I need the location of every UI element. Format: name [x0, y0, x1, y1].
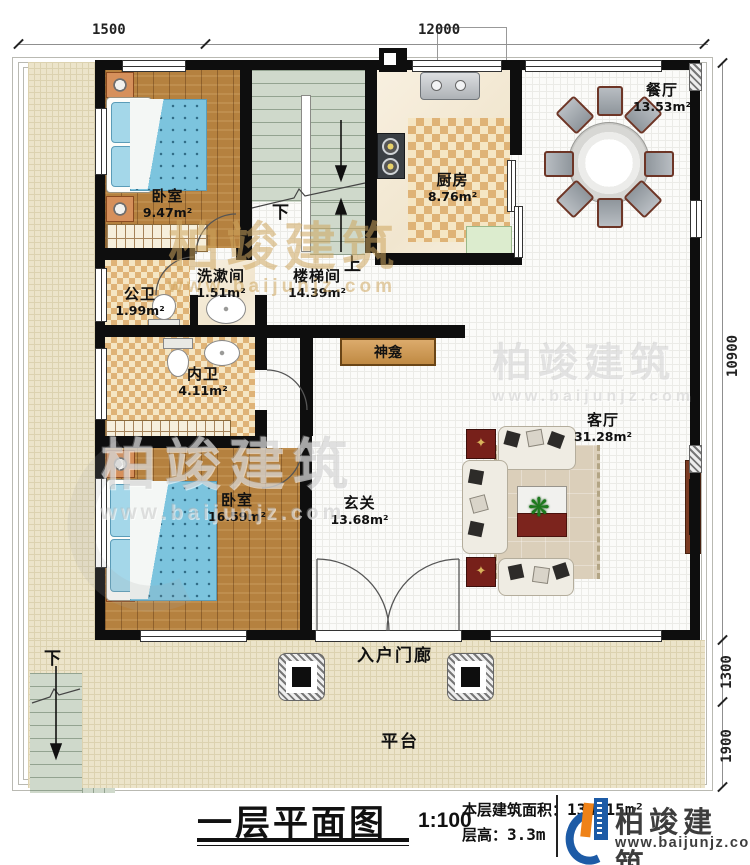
stove	[377, 133, 405, 179]
dining-chair	[597, 86, 623, 116]
window	[95, 478, 107, 568]
room-area: 14.39m²	[262, 286, 372, 301]
room-area: 16.59m²	[192, 510, 282, 525]
inner-bath-sink	[204, 340, 240, 366]
wall	[95, 418, 105, 478]
dim-top-left: 1500	[92, 22, 126, 38]
bed-sheet	[130, 99, 172, 189]
brand-logo-icon	[565, 797, 613, 859]
room-area: 9.47m²	[120, 206, 215, 221]
shrine-label: 神龛	[374, 344, 402, 360]
column-core	[461, 667, 480, 687]
room-label-washroom: 洗漱间 1.51m²	[180, 268, 262, 300]
title-separator	[556, 795, 558, 857]
room-name: 入户门廊	[330, 646, 460, 666]
outdoor-stair-down-label: 下	[44, 644, 61, 669]
room-label-public-bath: 公卫 1.99m²	[100, 286, 180, 318]
wall	[95, 60, 105, 108]
window	[122, 60, 186, 72]
window	[95, 108, 107, 175]
logo-building-blue	[594, 798, 608, 840]
stair-down-label: 下	[272, 198, 289, 223]
nightstand	[106, 72, 134, 98]
dining-chair	[644, 151, 674, 177]
nightstand	[106, 450, 135, 478]
stair-up-label: 上	[344, 250, 361, 275]
room-name: 公卫	[100, 286, 180, 304]
porch-column	[278, 653, 325, 701]
wall	[255, 337, 267, 370]
stairwell-floor-lower	[310, 202, 365, 255]
window	[525, 60, 662, 72]
wall	[300, 325, 313, 436]
potted-plant: ❋	[528, 494, 550, 520]
bed-sheet	[130, 481, 176, 599]
stair-divider	[301, 95, 311, 252]
flue-box-inner	[384, 53, 396, 65]
burner	[382, 158, 399, 175]
room-area: 1.51m²	[180, 286, 262, 301]
wall	[95, 566, 105, 640]
window	[140, 630, 247, 642]
room-label-bedroom2: 卧室 16.59m²	[192, 492, 282, 524]
room-area: 13.68m²	[312, 513, 407, 528]
room-label-platform: 平台	[355, 732, 445, 752]
wall	[690, 236, 700, 640]
room-label-foyer: 玄关 13.68m²	[312, 495, 407, 527]
burner	[382, 138, 399, 155]
sofa-cushion	[468, 521, 485, 538]
side-table: ✦	[466, 557, 496, 587]
dim-right-porch: 1300	[719, 655, 735, 689]
room-area: 1.99m²	[100, 304, 180, 319]
wall	[460, 630, 490, 640]
wall	[240, 60, 252, 250]
room-name: 内卫	[163, 366, 243, 384]
room-area: 13.53m²	[622, 100, 702, 115]
room-label-living: 客厅 31.28m²	[558, 412, 648, 444]
room-name: 餐厅	[622, 82, 702, 100]
brand-url: www.baijunjz.com	[615, 835, 750, 851]
floor-height-line: 层高：3.3m	[462, 824, 546, 845]
sofa-cushion	[532, 566, 550, 584]
room-name: 平台	[355, 732, 445, 752]
floor-area-label: 本层建筑面积：	[462, 802, 567, 819]
title-underline	[197, 838, 409, 842]
dining-chair	[544, 151, 574, 177]
sofa-cushion	[468, 469, 484, 485]
wall	[300, 448, 312, 630]
entry-threshold	[315, 630, 462, 642]
wall-hatch	[689, 445, 702, 473]
wall	[245, 630, 315, 640]
room-label-kitchen: 厨房 8.76m²	[405, 172, 500, 204]
window	[690, 200, 702, 238]
wall	[95, 630, 140, 640]
room-name: 卧室	[120, 188, 215, 206]
dim-line-top	[18, 44, 708, 45]
logo-windows	[597, 802, 602, 836]
kitchen-cabinet	[466, 226, 512, 255]
sofa-cushion	[526, 429, 545, 448]
kitchen-sliding-door	[514, 206, 523, 258]
floor-plan: ✦ ✦ ❋ 神龛	[0, 0, 750, 865]
wall	[95, 436, 260, 448]
wall	[95, 248, 195, 260]
faucet	[431, 80, 442, 91]
room-name: 洗漱间	[180, 268, 262, 286]
dim-top-main: 12000	[418, 22, 460, 38]
faucet	[455, 80, 466, 91]
wall	[265, 325, 465, 338]
room-label-bedroom1: 卧室 9.47m²	[120, 188, 215, 220]
wall	[184, 60, 412, 70]
room-area: 31.28m²	[558, 430, 648, 445]
dim-right-main: 10900	[725, 335, 741, 377]
room-label-dining: 餐厅 13.53m²	[622, 82, 702, 114]
title-underline-thin	[197, 845, 409, 846]
shrine-console: 神龛	[340, 338, 436, 366]
wall	[300, 436, 312, 448]
brand-block: 柏竣建筑 www.baijunjz.com	[565, 795, 750, 861]
room-label-inner-bath: 内卫 4.11m²	[163, 366, 243, 398]
sofa-cushion	[508, 564, 525, 581]
window	[95, 348, 107, 420]
kitchen-sliding-door	[507, 160, 516, 212]
room-area: 4.11m²	[163, 384, 243, 399]
floor-height-value: 3.3m	[507, 825, 546, 844]
wall	[365, 60, 377, 253]
dim-right-platform: 1900	[719, 729, 735, 763]
dining-chair	[597, 198, 623, 228]
floor-height-label: 层高：	[462, 827, 507, 844]
wall	[236, 248, 252, 260]
column-core	[292, 667, 311, 687]
window	[412, 60, 502, 72]
wall	[375, 253, 522, 265]
room-area: 8.76m²	[405, 190, 500, 205]
side-table: ✦	[466, 429, 496, 459]
title-block: 一层平面图 1:100 本层建筑面积：134.15m² 层高：3.3m 柏竣建筑…	[0, 793, 750, 865]
room-name: 客厅	[558, 412, 648, 430]
kitchen-sink	[420, 72, 480, 100]
room-label-porch: 入户门廊	[330, 646, 460, 666]
brand-name: 柏竣建筑	[615, 799, 750, 865]
room-name: 卧室	[192, 492, 282, 510]
room-name: 玄关	[312, 495, 407, 513]
window	[490, 630, 662, 642]
room-name: 厨房	[405, 172, 500, 190]
wall	[510, 60, 522, 155]
wall	[95, 325, 267, 337]
toilet-tank	[163, 338, 193, 349]
